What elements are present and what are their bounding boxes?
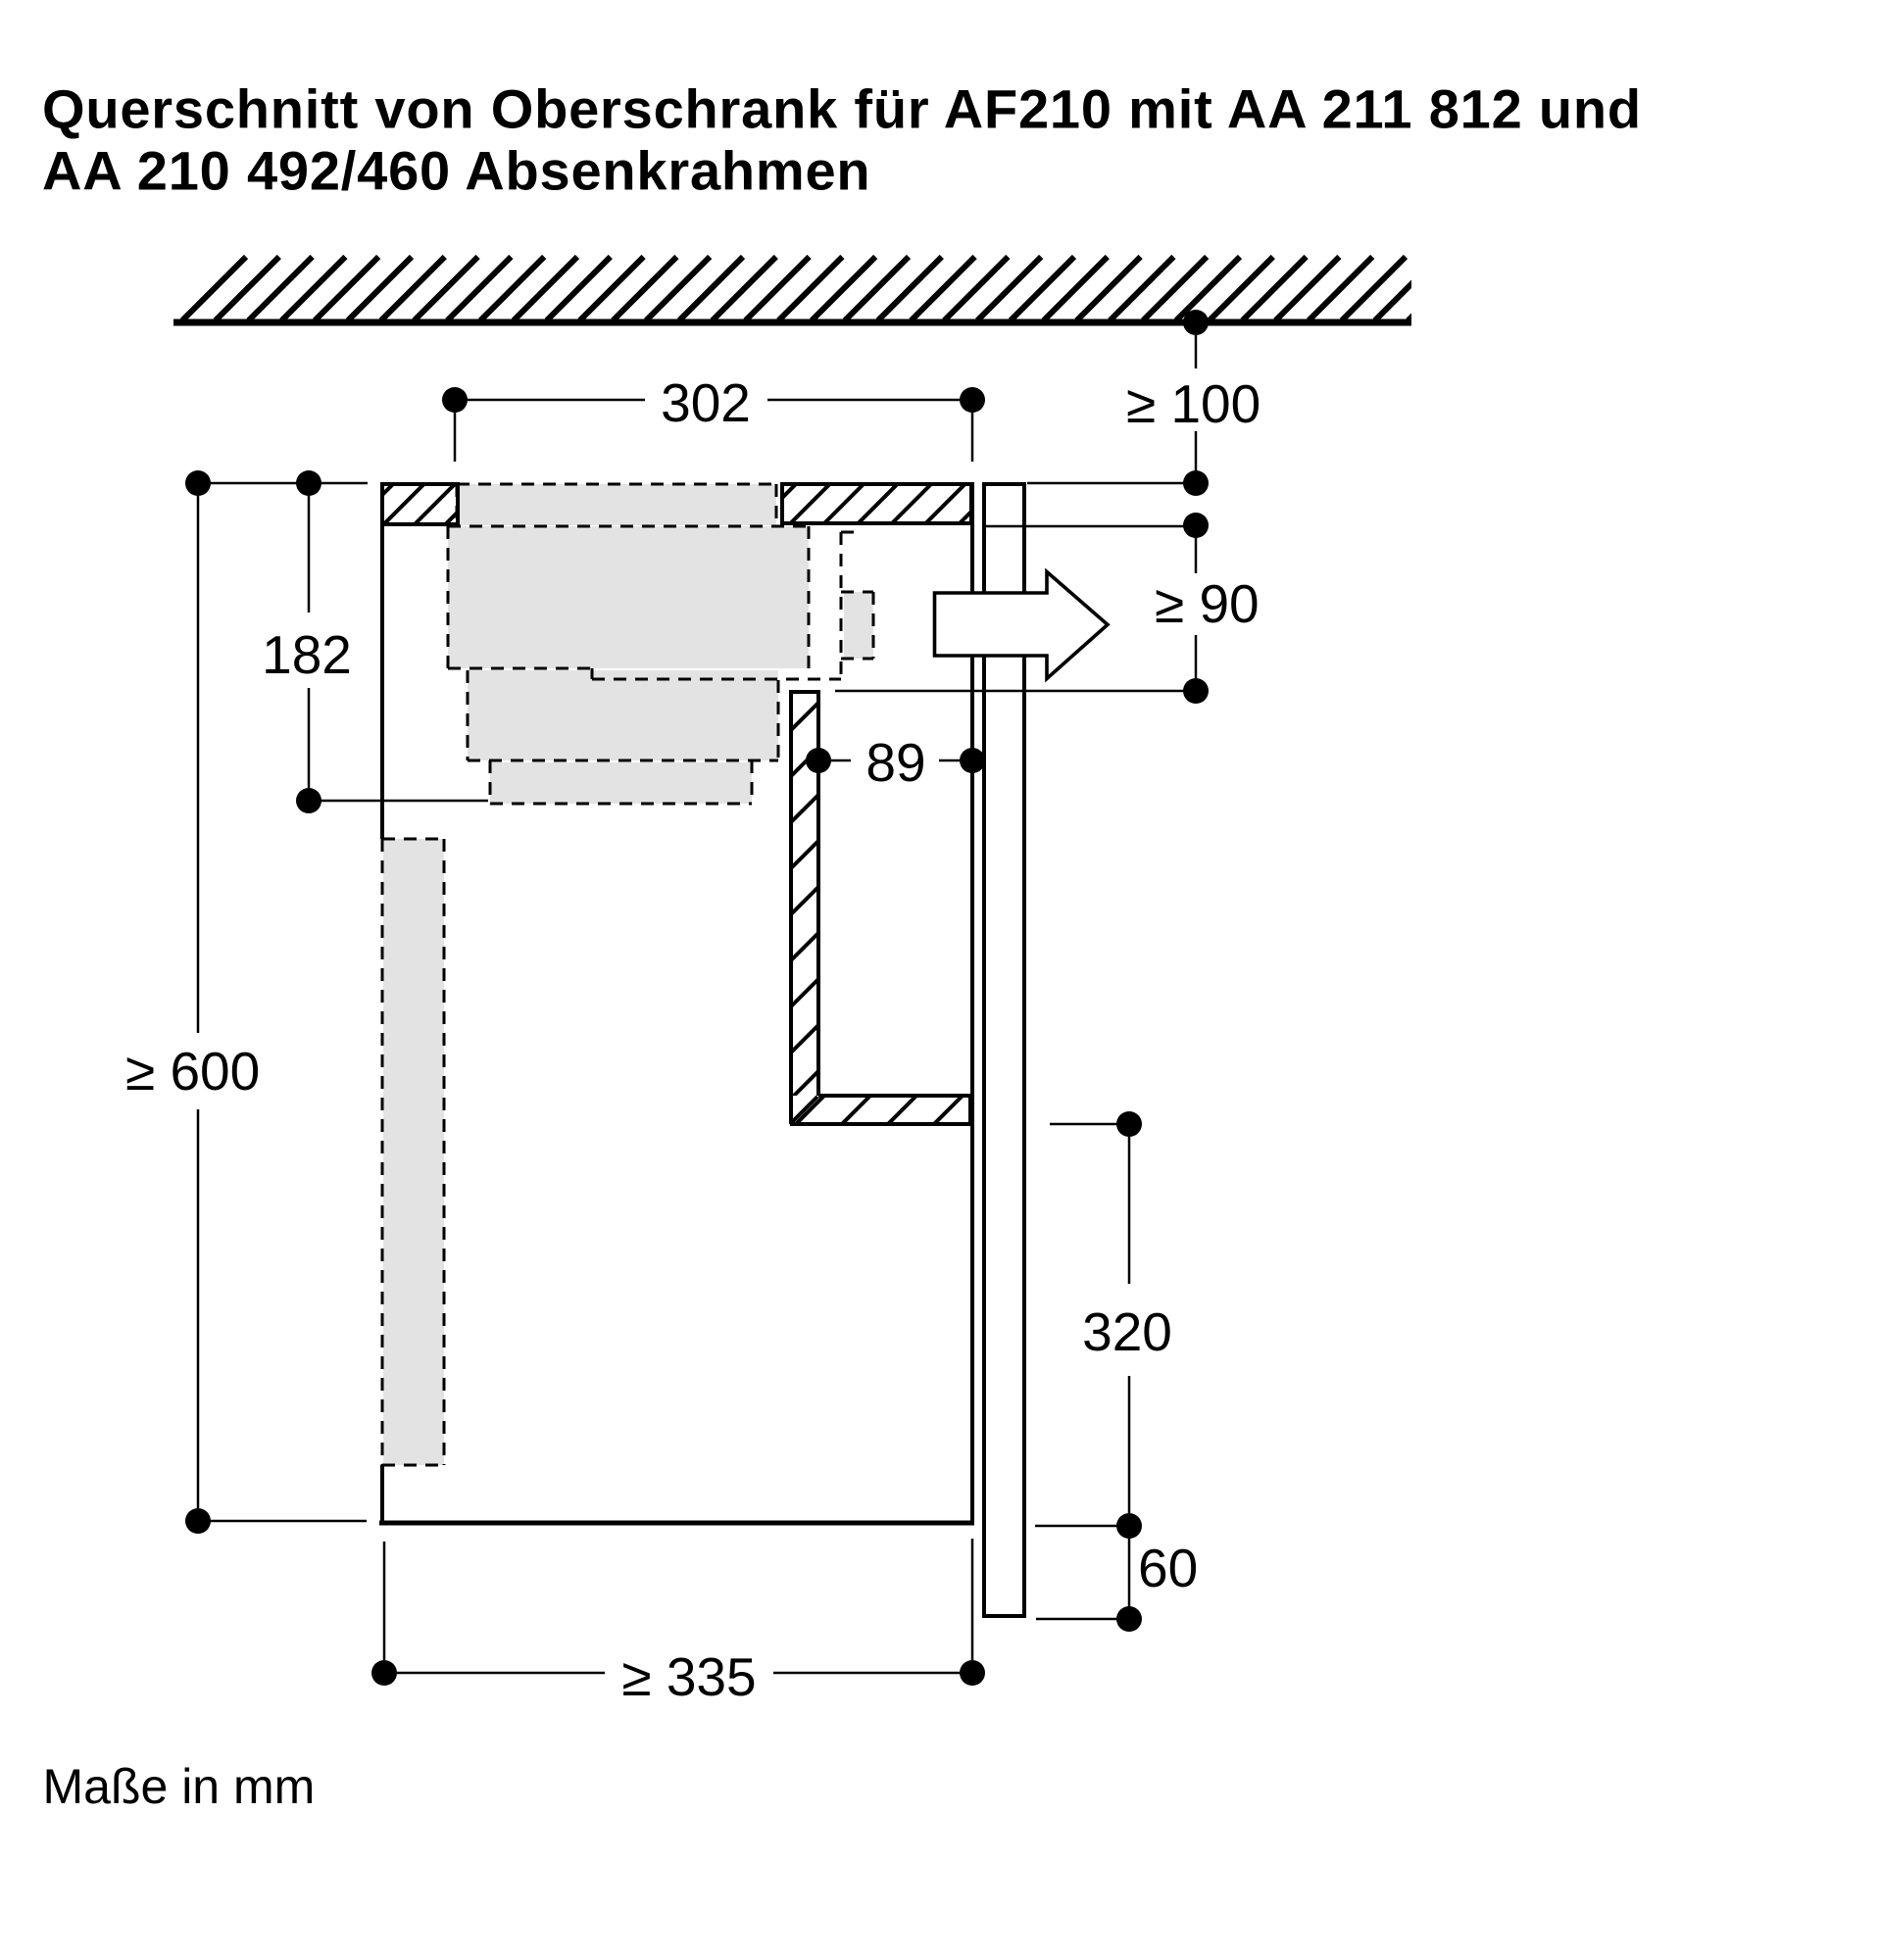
- svg-text:≥ 100: ≥ 100: [1126, 373, 1260, 434]
- svg-text:≥ 335: ≥ 335: [621, 1646, 756, 1707]
- svg-text:60: 60: [1138, 1538, 1198, 1598]
- svg-text:182: 182: [262, 624, 352, 685]
- svg-text:AA 210 492/460 Absenkrahmen: AA 210 492/460 Absenkrahmen: [42, 140, 870, 202]
- svg-text:Querschnitt von Oberschrank fü: Querschnitt von Oberschrank für AF210 mi…: [42, 78, 1642, 140]
- svg-text:≥ 600: ≥ 600: [125, 1041, 260, 1102]
- svg-text:302: 302: [661, 372, 751, 433]
- svg-text:320: 320: [1082, 1301, 1172, 1362]
- svg-text:≥ 90: ≥ 90: [1155, 573, 1260, 634]
- svg-text:89: 89: [865, 732, 925, 793]
- svg-text:Maße in mm: Maße in mm: [43, 1759, 316, 1814]
